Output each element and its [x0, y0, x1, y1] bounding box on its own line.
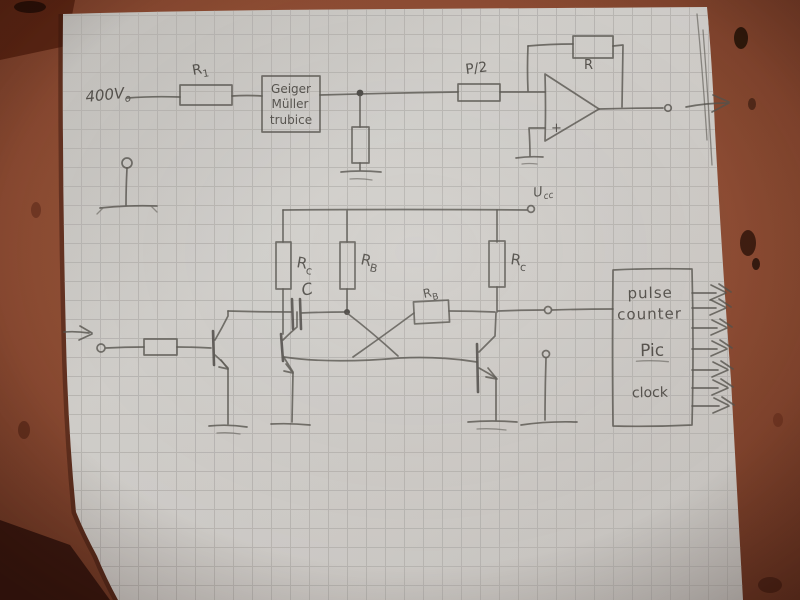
photo-vignette — [0, 0, 800, 600]
photo-of-schematic: 400Vo R1 Geiger Müller trubice P/2 R + — [0, 0, 800, 600]
schematic-photo-canvas: 400Vo R1 Geiger Müller trubice P/2 R + — [0, 0, 800, 600]
